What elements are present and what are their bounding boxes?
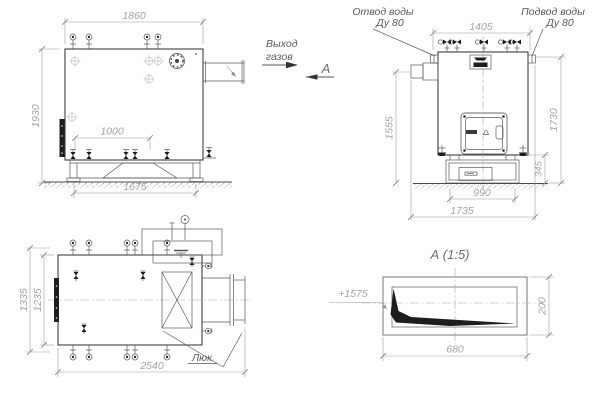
dim-text-1235: 1235 [32,288,44,312]
dimension-top-connections: 1405 [430,21,533,50]
valve-icon [144,34,150,49]
valve-icon [82,324,87,334]
side-elevation-view: 1860 1930 [30,10,244,198]
dimension-overall-length: 2540 [55,327,248,377]
dim-text-1555: 1555 [384,116,396,140]
furnace-door [461,113,507,154]
section-label-a: А [321,61,331,76]
dim-text-200: 200 [537,297,549,316]
dim-text-1405: 1405 [469,21,493,33]
valve-icon [438,40,451,53]
front-elevation-view: Отвод воды Ду 80 Подвод воды Ду 80 1405 [352,6,585,221]
side-bracket-valve [203,148,216,159]
valve-icon [86,34,92,49]
drain-valve-icon [86,150,92,161]
drain-valve-icon [132,150,138,161]
flange-icon [170,54,185,69]
rivet-mark [195,53,197,55]
center-mark-icon [70,56,81,67]
gas-exit-label-1: Выход [266,38,298,50]
rear-flange-plate [60,119,65,157]
elevation-text: +1575 [338,288,368,300]
water-outlet-flange [431,55,439,63]
detail-view-a: А (1:5) +1575 200 680 [329,247,554,361]
weld-section-fill [391,289,516,327]
gas-exit-annotation: Выход газов [262,38,298,68]
dim-text-990: 990 [473,187,491,199]
valve-icon [70,345,76,360]
water-outlet-label-2: Ду 80 [375,17,404,29]
dimension-detail-height: 200 [529,274,554,338]
water-inlet-callout: Подвод воды Ду 80 [521,6,585,56]
base-frame [67,160,203,182]
valve-icon [86,345,92,360]
anchor-bolt-icon [438,145,446,156]
dim-text-2540: 2540 [139,360,164,372]
valve-icon [164,345,170,360]
water-outlet-callout: Отвод воды Ду 80 [352,6,435,56]
valve-icon [132,345,138,360]
detail-title: А (1:5) [429,247,469,262]
dim-text-1735: 1735 [450,205,474,217]
plan-view: Люк 1335 1235 2540 [18,216,252,378]
rear-flange-plate [54,278,59,322]
valve-icon [141,271,146,281]
drain-valve-icon [70,150,76,161]
dimension-duct-axis-height: 1555 [384,69,412,186]
gas-duct-stub [411,63,438,80]
nameplate [470,55,491,69]
dimension-overall-height: 1930 [30,46,60,186]
gas-exit-label-2: газов [266,51,293,63]
anchor-bolt-icon [519,145,527,156]
dim-text-1930: 1930 [30,104,42,128]
technical-drawing: 1860 1930 [0,0,600,400]
dim-text-680: 680 [446,344,464,356]
dim-text-1860: 1860 [122,10,146,22]
valve-icon [155,34,161,49]
sight-hole-icon [484,131,489,135]
valve-icon [475,40,488,53]
dimension-base-height: 345 [528,152,549,186]
dimension-overall-width: 1860 [62,10,206,44]
section-view-arrow: А [306,61,334,80]
dim-text-1730: 1730 [548,108,560,132]
valve-icon [202,328,212,334]
valve-icon [86,240,92,255]
door-latch [496,126,503,139]
valve-icon [74,271,79,281]
elevation-mark: +1575 [329,288,387,309]
drain-valve-icon [123,150,129,161]
valve-icon [124,240,130,255]
base-frame-front [446,155,519,183]
dim-text-1675: 1675 [123,181,147,193]
center-mark-icon [67,112,78,123]
valve-icon [70,240,76,255]
water-inlet-label-2: Ду 80 [545,17,574,29]
dim-text-1000: 1000 [100,126,124,138]
valve-icon [164,240,170,255]
drawing-sheet: 1860 1930 [0,0,600,400]
dimension-connection-spacing: 1000 [72,126,153,151]
drain-valve-icon [164,150,170,161]
dimension-base-width-front: 990 [447,187,518,203]
center-mark-icon [144,74,155,85]
view-direction-arrow-icon [306,74,318,80]
ash-door [459,168,492,181]
gas-duct [203,60,244,84]
valve-icon [202,263,212,269]
hatch-label: Люк [191,352,213,364]
valve-icon [124,345,130,360]
valve-icon [70,34,76,49]
valve-icon [132,240,138,255]
center-mark-icon [153,56,164,67]
valve-icon [190,257,195,267]
water-inlet-flange [528,55,536,63]
door-handle [466,130,477,134]
flue-duct-box [142,216,222,264]
dim-text-1335: 1335 [18,288,30,312]
valve-icon [498,40,511,53]
